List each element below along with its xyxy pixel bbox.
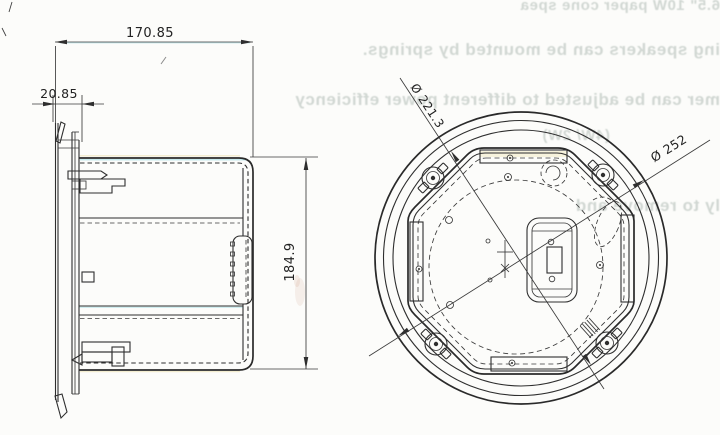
side-view-drawing: 170.85 20.85 184.9 [32,26,318,418]
terminal-recess [231,236,253,304]
flat-recess-right [621,215,634,302]
center-marks [497,240,513,278]
terminal-connector-block [527,218,577,302]
dim-overall-width: 170.85 [55,26,253,157]
dim-width-label: 170.85 [126,26,174,41]
screw-holes [416,155,604,366]
flat-recess-left [410,222,423,301]
dim-inner-diameter-label: Ø 221.3 [408,81,448,131]
scanned-technical-drawing-page: 6.5" 10W paper cone spea ing speakers ca… [0,0,720,435]
hatch-mark [580,318,600,338]
spring-clips [412,154,627,364]
dim-flange-label: 20.85 [40,86,78,101]
dim-inner-diameter: Ø 221.3 [400,78,604,389]
front-flange [55,122,79,418]
speaker-dimension-drawing: 170.85 20.85 184.9 [0,0,720,435]
rear-view-drawing: Ø 221.3 Ø 252 [369,78,710,404]
dim-overall-height: 184.9 [250,157,318,369]
dim-height-label: 184.9 [283,242,298,281]
octagonal-back-plate [408,148,634,374]
spring-clip-nw [412,157,453,198]
dim-flange-depth: 20.85 [32,86,104,142]
cable-entry-hole [541,160,567,186]
speaker-can-body [79,158,253,370]
dim-outer-diameter-label: Ø 252 [648,131,690,165]
mounting-tabs [68,171,130,366]
